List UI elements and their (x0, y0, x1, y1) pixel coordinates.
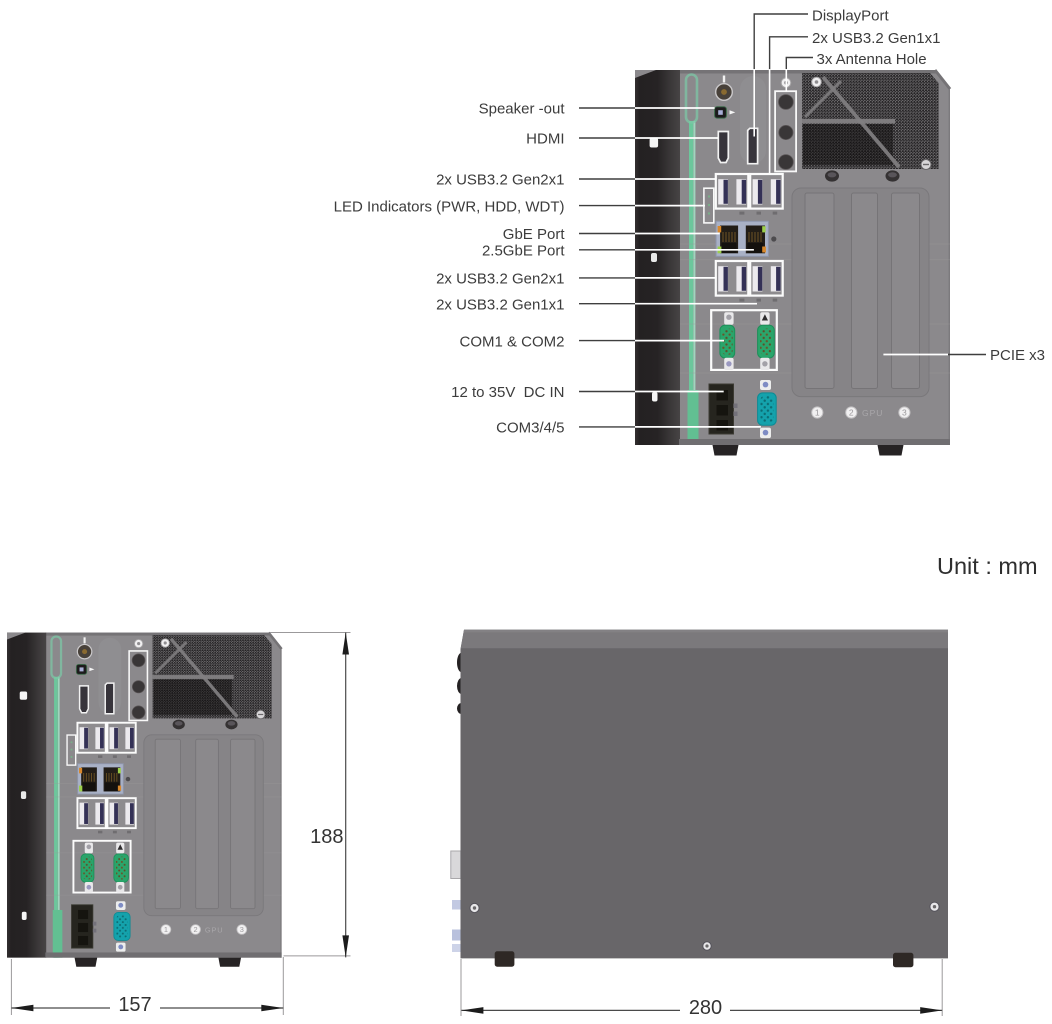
svg-text:3x Antenna Hole: 3x Antenna Hole (817, 51, 927, 68)
svg-text:280: 280 (689, 997, 722, 1019)
svg-text:LED Indicators (PWR, HDD, WDT): LED Indicators (PWR, HDD, WDT) (334, 198, 565, 215)
svg-text:12 to 35V DC IN: 12 to 35V DC IN (451, 384, 564, 401)
svg-text:2.5GbE Port: 2.5GbE Port (482, 243, 565, 260)
svg-text:2x USB3.2 Gen1x1: 2x USB3.2 Gen1x1 (436, 296, 564, 313)
svg-text:HDMI: HDMI (526, 131, 564, 148)
svg-text:2x USB3.2 Gen2x1: 2x USB3.2 Gen2x1 (436, 271, 564, 288)
svg-text:PCIE x3: PCIE x3 (990, 347, 1045, 364)
svg-text:Unit : mm: Unit : mm (937, 553, 1038, 579)
svg-text:2x USB3.2 Gen1x1: 2x USB3.2 Gen1x1 (812, 30, 940, 47)
svg-text:2x USB3.2 Gen2x1: 2x USB3.2 Gen2x1 (436, 172, 564, 189)
svg-text:COM1 & COM2: COM1 & COM2 (459, 333, 564, 350)
svg-text:Speaker -out: Speaker -out (479, 101, 566, 118)
svg-text:DisplayPort: DisplayPort (812, 8, 890, 25)
svg-text:157: 157 (118, 994, 151, 1016)
svg-text:COM3/4/5: COM3/4/5 (496, 420, 564, 437)
svg-text:GbE Port: GbE Port (503, 226, 566, 243)
svg-text:188: 188 (310, 826, 343, 848)
